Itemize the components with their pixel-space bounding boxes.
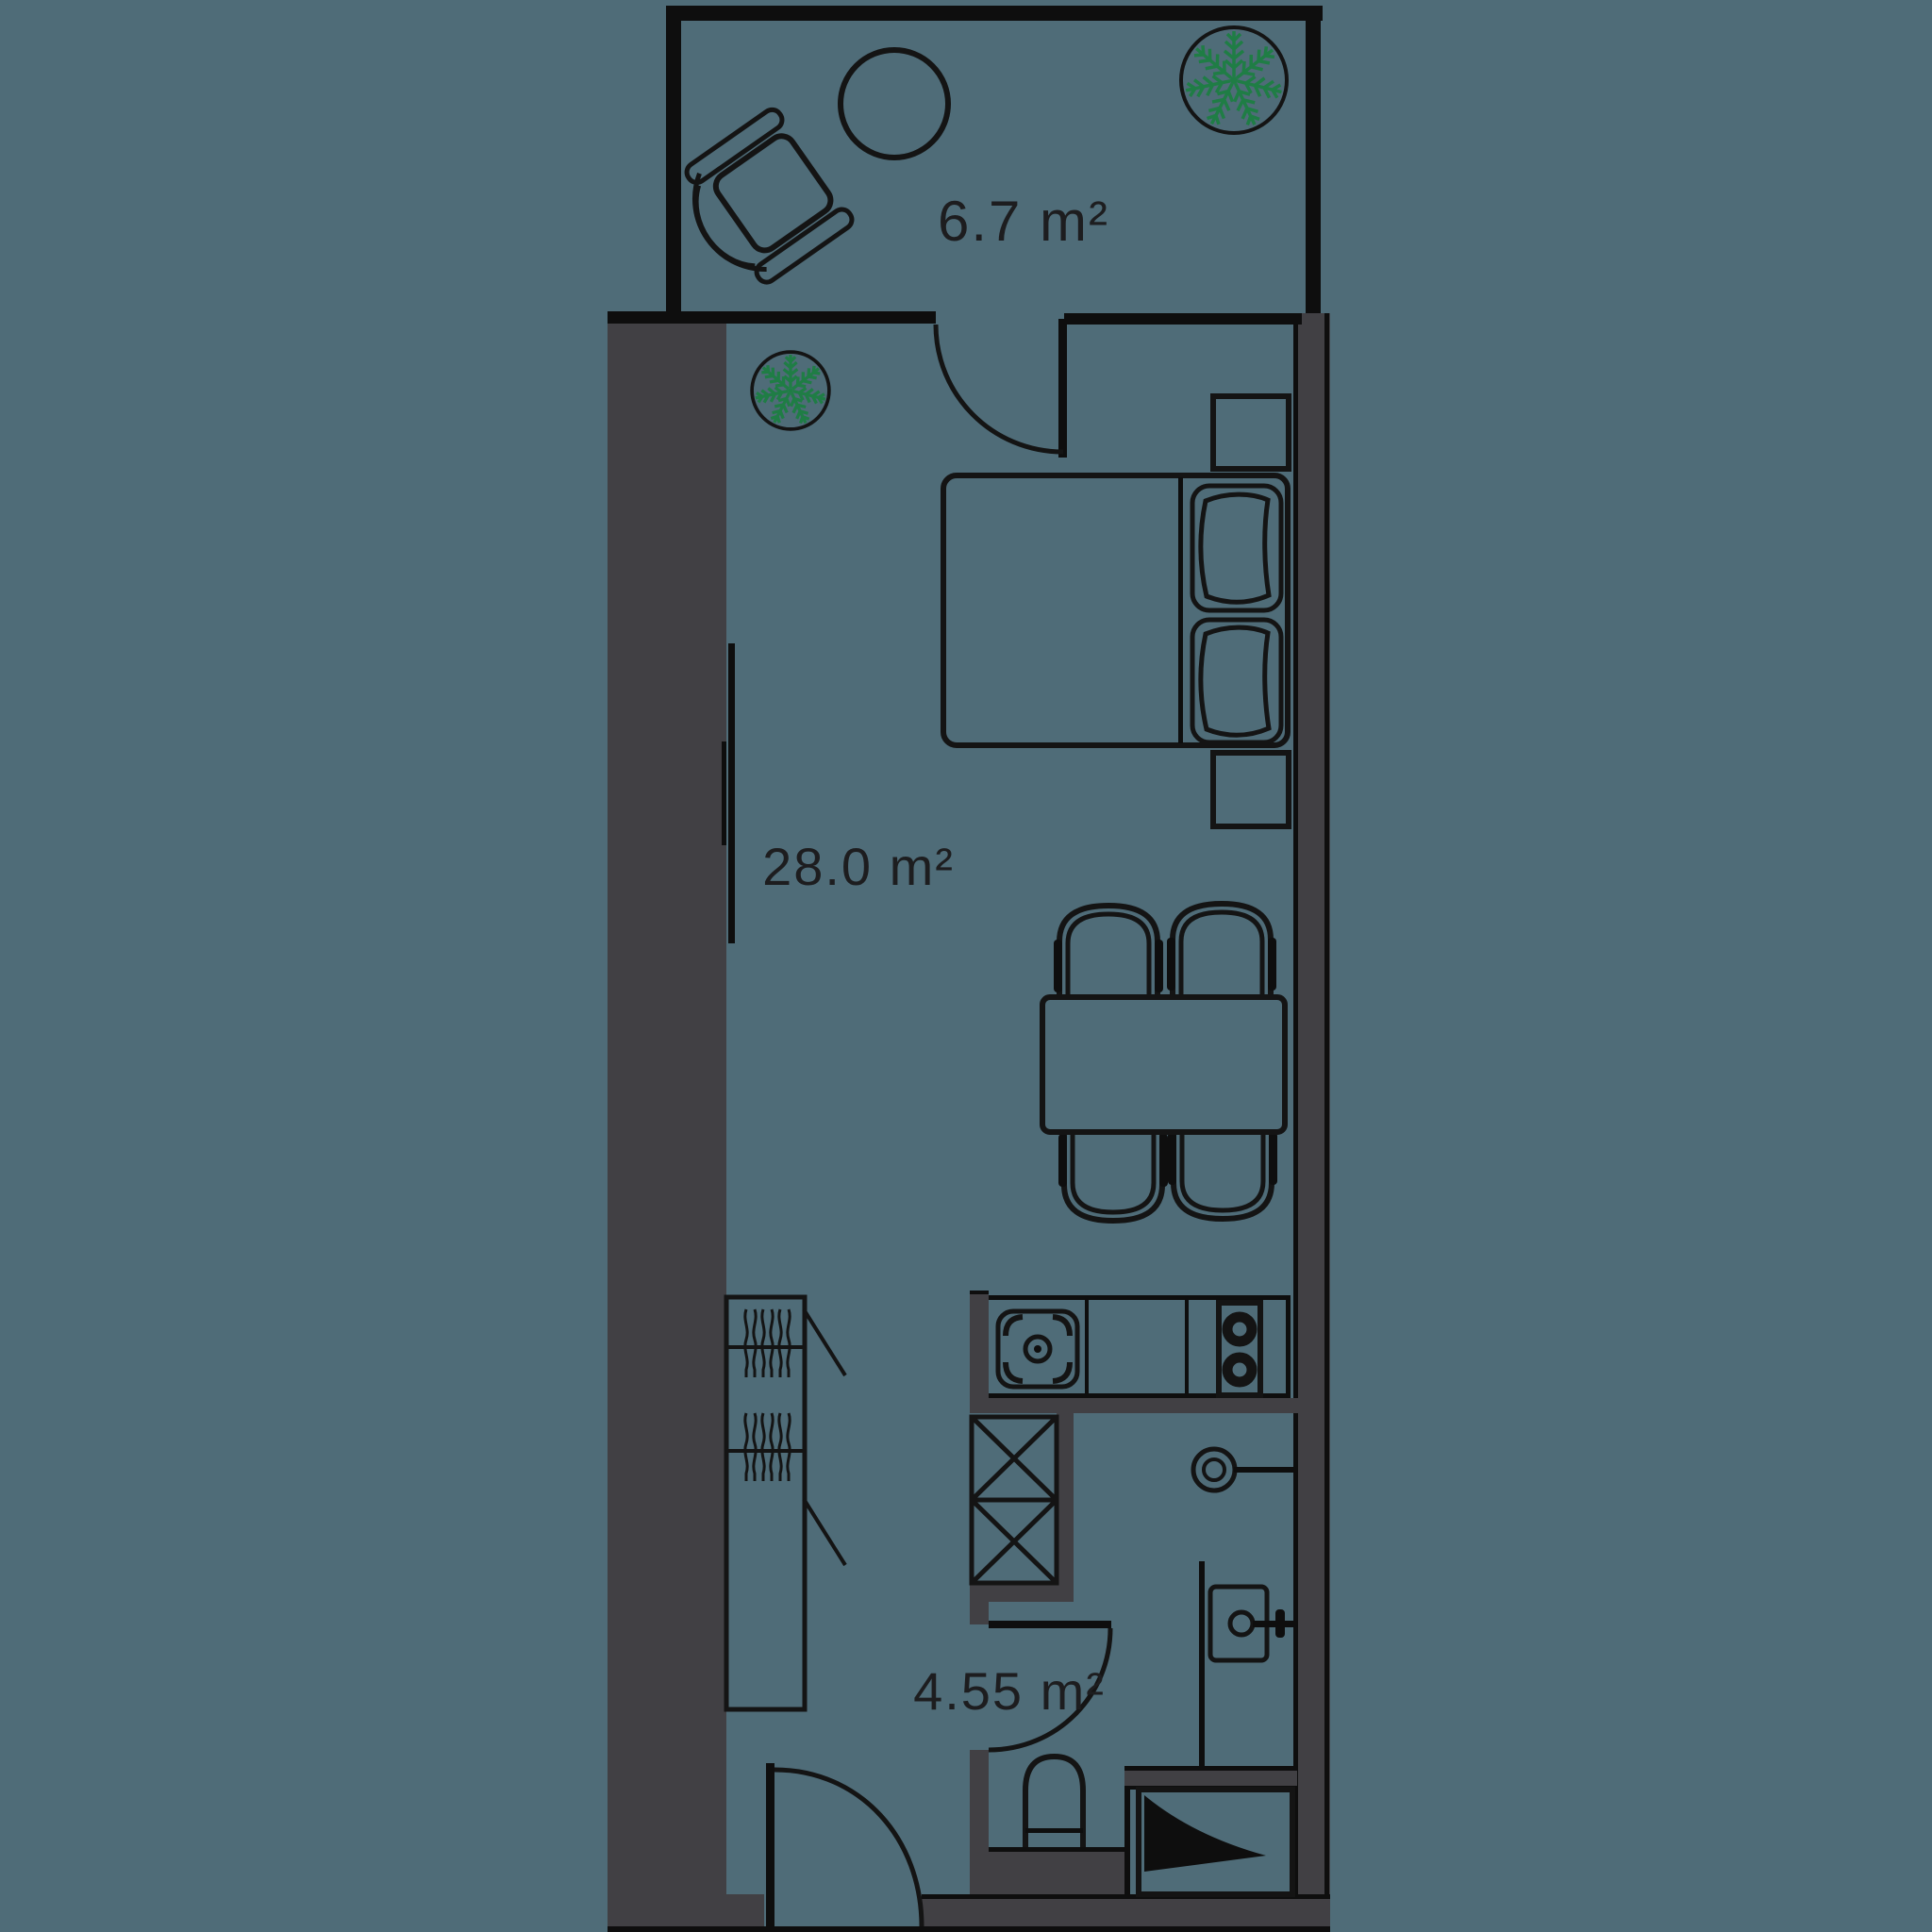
balcony-wall-left [666,6,681,314]
floor-background [0,0,1932,1932]
balcony-wall-top [666,6,1323,21]
shower-head-arm [1234,1467,1294,1473]
shaft-left-stub [970,1583,989,1624]
kitchen-wall-stub-cap [970,1291,989,1294]
balcony-area-label: 6.7 m² [938,190,1109,253]
wall-bottom-outer-edge [608,1926,1330,1932]
toilet-niche-edge [989,1847,1126,1852]
floor-plan-canvas: 6.7 m² 28.0 m² 4.55 m² [0,0,1932,1932]
toilet-seat-line [1025,1828,1083,1833]
counter-divider-1 [1085,1298,1089,1395]
wall-top-right-segment [1064,313,1302,325]
wall-left [608,311,726,1894]
entry-door-leaf [766,1763,774,1927]
bathroom-area-label: 4.55 m² [913,1661,1106,1721]
tv-screen [728,643,735,943]
floor-plan: 6.7 m² 28.0 m² 4.55 m² [0,0,1932,1932]
kitchen-wall-band [970,1398,1300,1413]
wall-top-left-segment [608,311,936,324]
main-room-area-label: 28.0 m² [762,837,955,896]
washbasin-tap-stem [1253,1621,1294,1627]
bed-head-divider [1178,477,1183,743]
bathroom-door-leaf [989,1621,1111,1628]
tv-wall-mount [722,741,726,845]
wall-right-inner-edge [1293,313,1298,1926]
counter-right-edge [1286,1295,1291,1398]
balcony-door-leaf [1058,319,1067,458]
shaft-right-wall [1057,1413,1074,1602]
counter-divider-2 [1185,1298,1189,1395]
counter-top-edge [989,1295,1291,1300]
shower-top-wall-edge-a [1124,1766,1297,1771]
kitchen-wall-stub [970,1292,989,1413]
wall-right-outer-edge [1324,313,1329,1926]
balcony-wall-right [1306,6,1321,314]
dining-table-icon [1042,997,1285,1132]
sink-drain-dot [1034,1345,1041,1353]
washbasin-wall-bracket [1275,1609,1285,1638]
bathroom-left-wall [970,1750,989,1894]
toilet-niche-band [989,1847,1126,1894]
bathroom-partition [1199,1561,1205,1771]
